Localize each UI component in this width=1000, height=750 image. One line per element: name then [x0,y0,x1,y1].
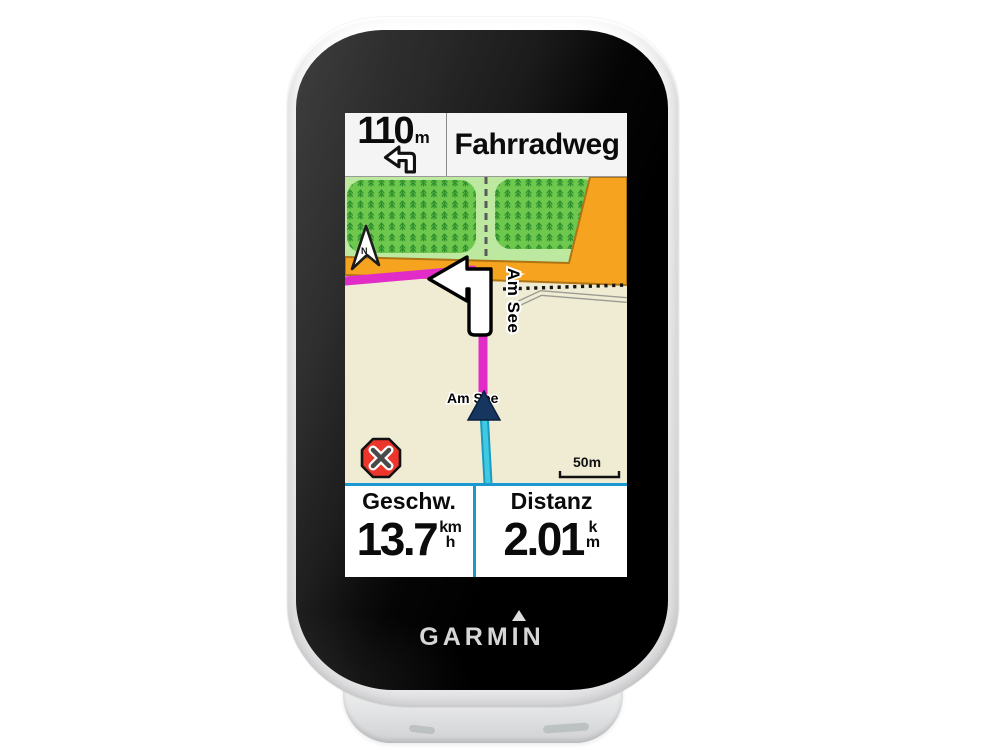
distance-unit-bottom: m [586,535,600,550]
distance-label: Distanz [476,488,627,516]
turn-guidance-banner[interactable]: 110m Fahrradweg [345,113,627,177]
scale-bar-label: 50m [573,454,601,470]
touch-screen[interactable]: 110m Fahrradweg [345,113,627,577]
device-body: 110m Fahrradweg [287,17,679,707]
distance-unit-top: k [589,520,597,535]
garmin-edge-device: 110m Fahrradweg [287,17,679,745]
next-street-name: Fahrradweg [447,113,627,176]
data-fields-row: Geschw. 13.7 km h Distanz [345,483,627,577]
data-field-distance[interactable]: Distanz 2.01 k m [473,486,627,577]
map-canvas[interactable]: N Am See Am See [345,177,627,483]
mount-slot [543,722,589,733]
stop-x-icon [373,450,389,466]
garmin-delta-icon [512,610,526,621]
speed-value: 13.7 [357,516,437,562]
brand-logo: GARMIN [296,623,668,652]
stop-navigation-button[interactable] [362,439,400,477]
speed-label: Geschw. [345,488,473,516]
screen-glass: 110m Fahrradweg [296,30,668,690]
speed-unit-bottom: h [446,535,455,550]
product-photo-stage: 110m Fahrradweg [0,0,1000,750]
turn-left-icon [383,145,419,174]
speed-unit-top: km [439,520,461,535]
street-label-vertical: Am See [504,268,523,333]
distance-value: 2.01 [503,516,583,562]
data-field-speed[interactable]: Geschw. 13.7 km h [345,486,473,577]
brand-logo-text: GARMIN [419,623,544,651]
compass-label: N [361,246,368,256]
mount-slot [409,724,436,734]
turn-distance-cell: 110m [345,113,446,176]
traveled-track-line [484,411,488,483]
